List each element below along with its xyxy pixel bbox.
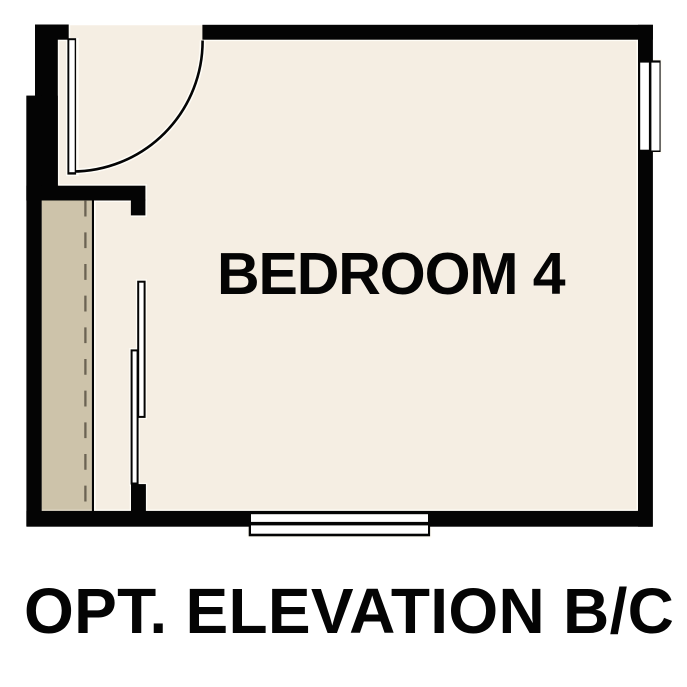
svg-text:OPT. ELEVATION B/C: OPT. ELEVATION B/C [24, 575, 674, 647]
svg-text:BEDROOM 4: BEDROOM 4 [217, 241, 566, 307]
